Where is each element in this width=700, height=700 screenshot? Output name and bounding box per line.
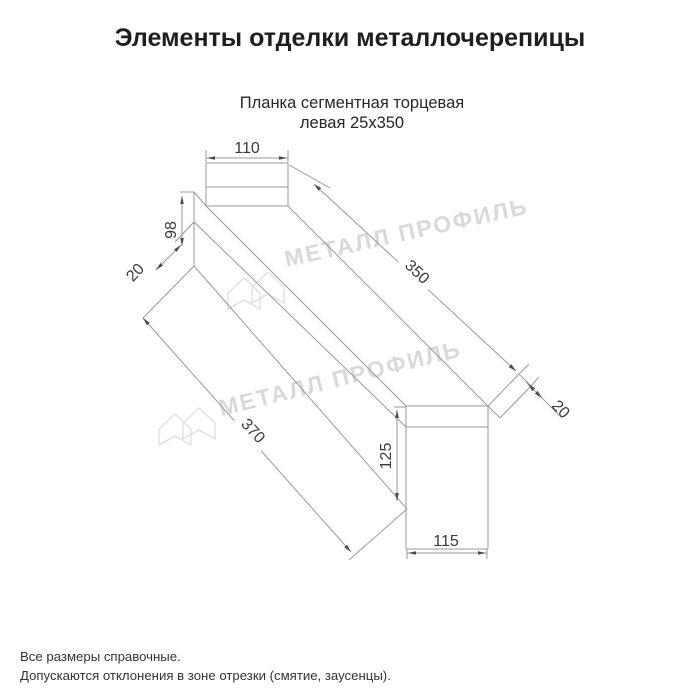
brand-logo-icon bbox=[159, 408, 215, 445]
dimension-right-height: 125 bbox=[378, 443, 395, 470]
watermark-text: МЕТАЛЛ ПРОФИЛЬ bbox=[216, 336, 464, 421]
catalog-page: Элементы отделки металлочерепицы Планка … bbox=[0, 0, 700, 700]
dimension-left-height: 98 bbox=[163, 221, 180, 239]
dimension-right-fold: 20 bbox=[548, 397, 573, 422]
brand-logo-icon bbox=[228, 272, 284, 309]
dimension-top-width: 110 bbox=[234, 140, 260, 157]
dimension-left-fold: 20 bbox=[123, 261, 148, 286]
brand-watermark-bottom: МЕТАЛЛ ПРОФИЛЬ bbox=[159, 336, 464, 445]
footer-note: Все размеры справочные. Допускаются откл… bbox=[20, 647, 391, 685]
dimension-bottom-width: 115 bbox=[433, 533, 459, 550]
brand-watermark-top: МЕТАЛЛ ПРОФИЛЬ bbox=[228, 193, 531, 309]
footer-note-line2: Допускаются отклонения в зоне отрезки (с… bbox=[20, 666, 391, 685]
technical-drawing: МЕТАЛЛ ПРОФИЛЬ МЕТАЛЛ ПРОФИЛЬ bbox=[0, 0, 700, 700]
footer-note-line1: Все размеры справочные. bbox=[20, 647, 391, 666]
